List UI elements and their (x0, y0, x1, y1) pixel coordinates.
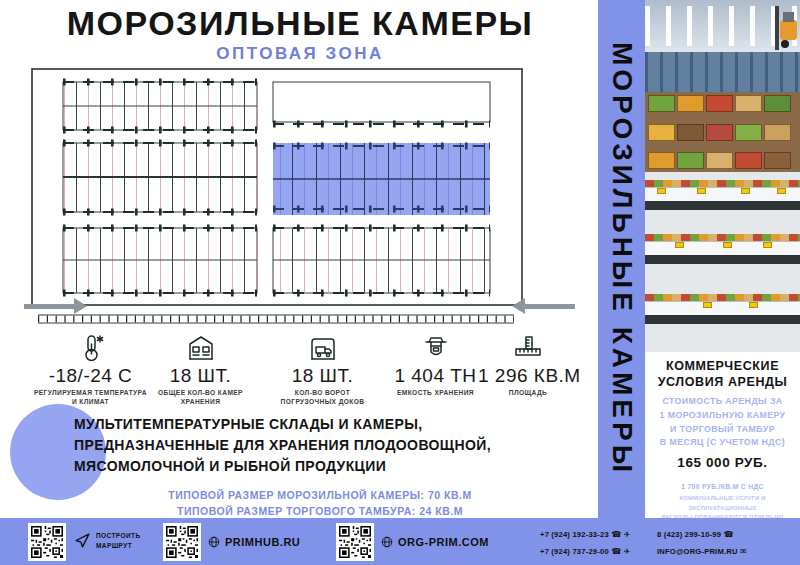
warehouse-photo (645, 0, 800, 352)
messenger-icon: ✈ (624, 547, 631, 556)
route-label: ПОСТРОИТЬ МАРШРУТ (96, 531, 140, 551)
page-title: МОРОЗИЛЬНЫЕ КАМЕРЫ (60, 4, 540, 43)
stat-value: -18/-24 C (28, 365, 153, 387)
qr-code-orgprim (336, 523, 374, 561)
description-paragraph: МУЛЬТИТЕМПЕРАТУРНЫЕ СКЛАДЫ И КАМЕРЫ, ПРЕ… (74, 414, 544, 477)
envelope-icon: ✉ (740, 547, 747, 556)
stat-dock-gates: 18 ШТ. КОЛ-ВО ВОРОТПОГРУЗОЧНЫХ ДОКОВ (260, 331, 385, 407)
qr-code-primhub (163, 523, 201, 561)
phone-email-contacts: 8 (423) 299-10-99 ☎ INFO@ORG-PRIM.RU ✉ (657, 527, 747, 561)
plan-block-bottom-right (273, 228, 490, 293)
stat-caption: ЕМКОСТЬ ХРАНЕНИЯ (383, 389, 488, 398)
globe-icon (381, 536, 393, 548)
dock-truck-icon (260, 331, 385, 363)
site-label: PRIMHUB.RU (225, 536, 300, 548)
site-label: ORG-PRIM.COM (398, 536, 489, 548)
phone-link[interactable]: +7 (924) 737-29-00 ☎ ✈ (540, 544, 631, 561)
offer-rate: 1 700 РУБ./КВ.М С НДС (645, 483, 800, 490)
entrance-arrow-right (512, 297, 575, 315)
scale-icon (383, 331, 488, 363)
vertical-title: МОРОЗИЛЬНЫЕ КАМЕРЫ (606, 42, 638, 476)
stat-temperature: -18/-24 C РЕГУЛИРУЕМАЯ ТЕМПЕРАТУРАИ КЛИМ… (28, 331, 153, 407)
plan-block-middle-left (63, 143, 257, 212)
vertical-title-strip: МОРОЗИЛЬНЫЕ КАМЕРЫ (598, 0, 645, 518)
stat-area: 1 296 КВ.М ПЛОЩАДЬ (478, 331, 578, 398)
qr-code-route (28, 523, 66, 561)
messenger-icon: ✈ (624, 530, 631, 539)
stat-chambers-count: 18 ШТ. ОБЩЕЕ КОЛ-ВО КАМЕРХРАНЕНИЯ (153, 331, 248, 407)
plan-dock-strip (38, 315, 514, 323)
warehouse-icon (153, 331, 248, 363)
header: МОРОЗИЛЬНЫЕ КАМЕРЫ ОПТОВАЯ ЗОНА (60, 4, 540, 64)
email-link[interactable]: INFO@ORG-PRIM.RU ✉ (657, 544, 747, 561)
offer-terms: СТОИМОСТЬ АРЕНДЫ ЗА 1 МОРОЗИЛЬНУЮ КАМЕРУ… (645, 395, 800, 450)
phone-contacts-mobile: +7 (924) 192-33-23 ☎ ✈ +7 (924) 737-29-0… (540, 527, 631, 561)
plan-block-bottom-left (63, 228, 257, 293)
typical-sizes: ТИПОВОЙ РАЗМЕР МОРОЗИЛЬНОЙ КАМЕРЫ: 70 КВ… (110, 487, 530, 520)
commercial-terms-panel: КОММЕРЧЕСКИЕ УСЛОВИЯ АРЕНДЫ СТОИМОСТЬ АР… (645, 352, 800, 518)
ruler-icon (478, 331, 578, 363)
stat-caption: КОЛ-ВО ВОРОТПОГРУЗОЧНЫХ ДОКОВ (260, 389, 385, 407)
forklift (772, 6, 798, 52)
plan-block-highlighted-freezer-zone[interactable] (273, 143, 490, 215)
phone-link[interactable]: +7 (924) 192-33-23 ☎ ✈ (540, 527, 631, 544)
stat-value: 18 ШТ. (260, 365, 385, 387)
plan-block-top-left (63, 82, 257, 130)
stat-caption: ПЛОЩАДЬ (478, 389, 578, 398)
footer-bar: ПОСТРОИТЬ МАРШРУТ PRIMHUB.RU ORG-PR (0, 518, 800, 565)
phone-icon: ☎ (611, 547, 621, 556)
brochure-page: МОРОЗИЛЬНЫЕ КАМЕРЫ ОПТОВАЯ ЗОНА (0, 0, 800, 565)
phone-icon: ☎ (724, 530, 734, 539)
entrance-arrow-left (24, 297, 87, 315)
site-link-primhub[interactable]: PRIMHUB.RU (208, 536, 300, 548)
route-block[interactable]: ПОСТРОИТЬ МАРШРУТ (74, 531, 140, 551)
offer-heading: КОММЕРЧЕСКИЕ УСЛОВИЯ АРЕНДЫ (645, 359, 800, 390)
stat-value: 18 ШТ. (153, 365, 248, 387)
stat-capacity: 1 404 ТН ЕМКОСТЬ ХРАНЕНИЯ (383, 331, 488, 398)
stat-value: 1 296 КВ.М (478, 365, 578, 387)
globe-icon (208, 536, 220, 548)
stat-caption: ОБЩЕЕ КОЛ-ВО КАМЕРХРАНЕНИЯ (153, 389, 248, 407)
thermometer-icon (28, 331, 153, 363)
site-link-orgprim[interactable]: ORG-PRIM.COM (381, 536, 489, 548)
stat-value: 1 404 ТН (383, 365, 488, 387)
navigation-arrow-icon (74, 532, 91, 549)
phone-icon: ☎ (611, 530, 621, 539)
offer-price: 165 000 РУБ. (645, 455, 800, 470)
floor-plan (28, 58, 580, 330)
phone-link[interactable]: 8 (423) 299-10-99 ☎ (657, 527, 747, 544)
